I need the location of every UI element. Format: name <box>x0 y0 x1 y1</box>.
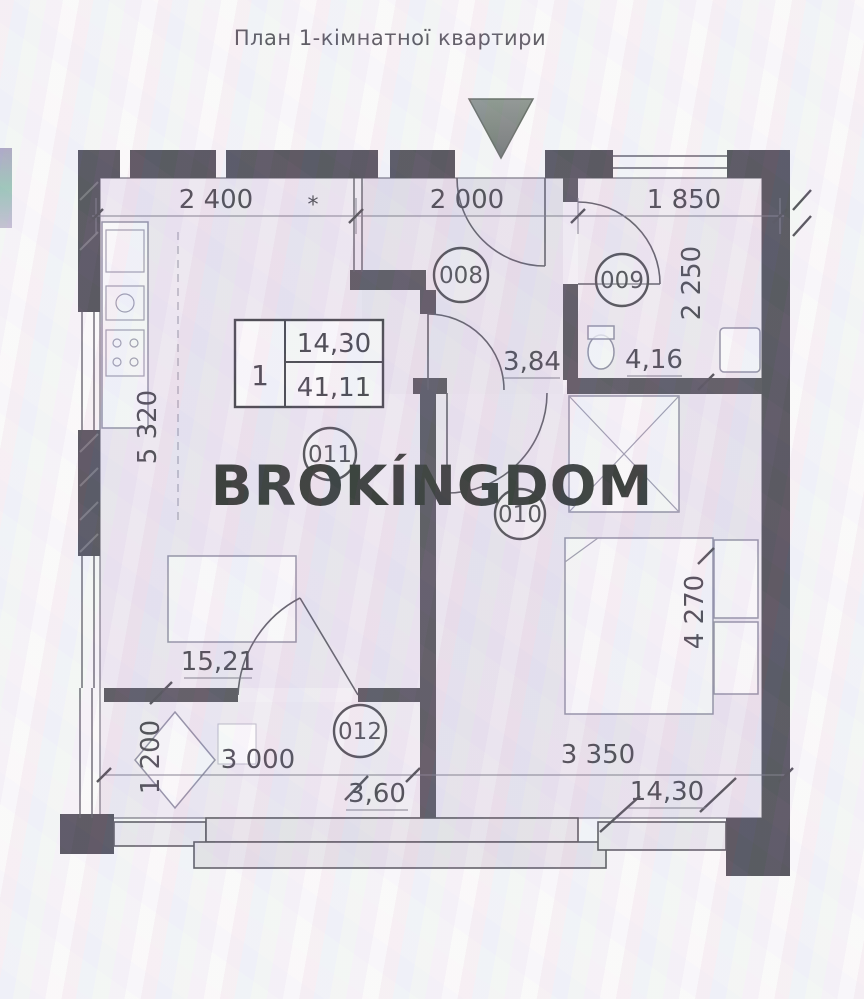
toilet-tank <box>588 326 614 339</box>
toilet <box>588 335 614 369</box>
dim-bottom-2: 3 350 <box>561 740 635 770</box>
dim-right-upper: 2 250 <box>677 246 707 320</box>
room-number-012: 012 <box>338 719 382 745</box>
area-bedroom: 14,30 <box>630 777 704 807</box>
dim-top-2: 2 000 <box>430 185 504 215</box>
scan-edge-artifact <box>0 148 12 228</box>
area-bathroom: 4,16 <box>625 345 683 375</box>
area-loggia: 3,60 <box>348 779 406 809</box>
window <box>82 312 94 430</box>
dim-left-lower: 1 200 <box>136 720 166 794</box>
scanned-floor-plan-page: План 1-кімнатної квартири <box>0 0 864 999</box>
dim-top-3: 1 850 <box>647 185 721 215</box>
floor-plan-drawing: План 1-кімнатної квартири <box>0 0 864 999</box>
room-number-009: 009 <box>600 268 644 294</box>
area-hall: 3,84 <box>503 347 561 377</box>
dim-left-upper: 5 320 <box>133 390 163 464</box>
stamp-total-area: 41,11 <box>297 373 371 403</box>
loggia-glazing <box>80 688 92 818</box>
area-living: 15,21 <box>181 647 255 677</box>
nightstand <box>714 540 758 618</box>
stamp-flat-number: 1 <box>251 359 269 392</box>
room-number-008: 008 <box>439 263 483 289</box>
washing-machine <box>720 328 760 372</box>
window <box>613 156 727 168</box>
apartment-stamp: 1 14,30 41,11 <box>235 320 383 407</box>
window <box>82 556 94 688</box>
watermark-text: BROKÍNGDOM <box>211 453 653 518</box>
stamp-living-area: 14,30 <box>297 329 371 359</box>
table <box>168 556 296 642</box>
dim-right-lower: 4 270 <box>680 575 710 649</box>
entrance-marker-icon <box>469 99 533 158</box>
balcony-slabs <box>114 818 726 868</box>
dim-bottom-1: 3 000 <box>221 745 295 775</box>
dim-top-1: 2 400 <box>179 185 253 215</box>
nightstand <box>714 622 758 694</box>
dim-top-mark: * <box>308 193 319 218</box>
plan-title: План 1-кімнатної квартири <box>234 26 546 50</box>
